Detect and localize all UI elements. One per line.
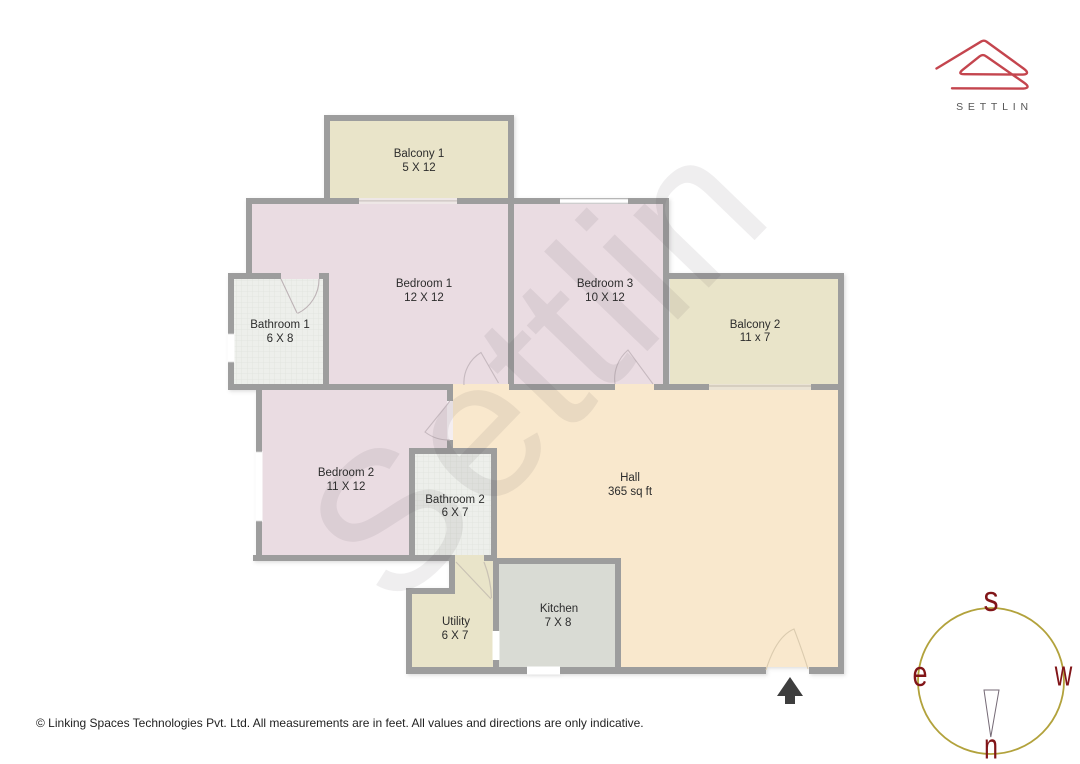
svg-text:Bedroom 1: Bedroom 1 — [396, 278, 452, 290]
svg-text:Utility: Utility — [442, 616, 470, 628]
svg-text:s: s — [984, 578, 999, 619]
svg-text:11 x 7: 11 x 7 — [740, 332, 770, 344]
svg-text:Balcony 2: Balcony 2 — [730, 319, 781, 331]
svg-text:11 X 12: 11 X 12 — [327, 481, 366, 493]
svg-text:6 X 8: 6 X 8 — [267, 333, 294, 345]
svg-text:© Linking Spaces Technologies: © Linking Spaces Technologies Pvt. Ltd. … — [36, 716, 644, 730]
svg-text:n: n — [984, 726, 998, 764]
svg-text:12 X 12: 12 X 12 — [404, 292, 444, 304]
svg-text:365 sq ft: 365 sq ft — [608, 486, 653, 498]
svg-text:Bathroom 2: Bathroom 2 — [425, 494, 484, 506]
svg-text:e: e — [913, 653, 928, 694]
svg-text:SETTLIN: SETTLIN — [956, 101, 1033, 113]
svg-text:6 X 7: 6 X 7 — [442, 507, 469, 519]
svg-text:w: w — [1054, 653, 1073, 694]
svg-text:6 X 7: 6 X 7 — [442, 630, 469, 642]
svg-text:Kitchen: Kitchen — [540, 603, 578, 615]
svg-text:7 X 8: 7 X 8 — [545, 617, 572, 629]
svg-text:10 X 12: 10 X 12 — [585, 292, 625, 304]
svg-text:Bedroom 3: Bedroom 3 — [577, 278, 633, 290]
svg-text:Bedroom 2: Bedroom 2 — [318, 467, 374, 479]
svg-text:5 X 12: 5 X 12 — [402, 162, 435, 174]
svg-text:Hall: Hall — [620, 472, 640, 484]
svg-text:Balcony 1: Balcony 1 — [394, 148, 445, 160]
svg-text:Bathroom 1: Bathroom 1 — [250, 319, 309, 331]
